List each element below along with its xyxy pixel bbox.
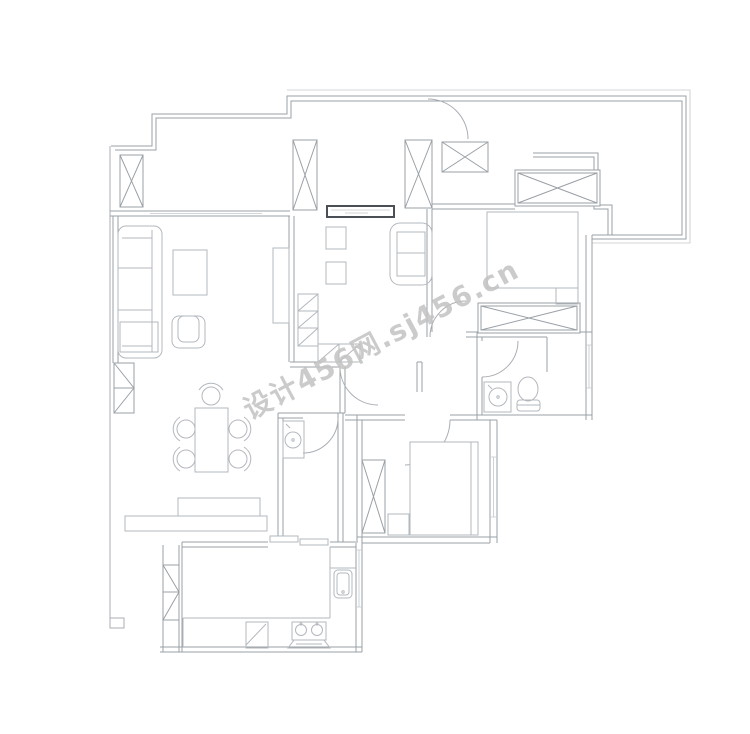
master-closet bbox=[515, 170, 600, 206]
armchair bbox=[172, 316, 205, 348]
column-icon bbox=[362, 460, 385, 533]
sideboard bbox=[178, 498, 260, 516]
column-icon bbox=[293, 140, 317, 210]
entry-door-arc bbox=[428, 99, 468, 139]
column-icon bbox=[114, 363, 134, 413]
kitchen-counter bbox=[183, 547, 356, 647]
master-wardrobe bbox=[478, 303, 580, 333]
toilet-icon bbox=[517, 377, 540, 411]
sideboard-lower bbox=[125, 516, 267, 531]
wash-basin-icon bbox=[484, 382, 511, 412]
dining-chair bbox=[199, 383, 223, 405]
tv-cabinet bbox=[273, 248, 289, 323]
corner-cabinet bbox=[246, 622, 268, 648]
loveseat bbox=[390, 223, 432, 285]
floor-plan-page: 设计456网.sj456.cn bbox=[0, 0, 750, 734]
dining-chair bbox=[229, 447, 251, 471]
dining-chair bbox=[229, 417, 251, 441]
dining-chair bbox=[173, 447, 195, 471]
column-icon bbox=[405, 140, 432, 208]
dining-table bbox=[195, 408, 228, 472]
bathroom-fixtures bbox=[484, 377, 540, 412]
kitchen-fixtures bbox=[183, 547, 356, 648]
bedroom2-furniture bbox=[388, 442, 478, 535]
nightstand bbox=[556, 288, 578, 304]
tea-chair bbox=[326, 227, 346, 249]
dining-chair bbox=[173, 417, 195, 441]
single-bed bbox=[410, 442, 478, 535]
tea-chair bbox=[326, 262, 346, 284]
kitchen-sink-icon bbox=[334, 570, 352, 598]
washing-machine-icon bbox=[283, 421, 304, 458]
living-room-furniture bbox=[118, 226, 289, 358]
cooktop-icon bbox=[288, 622, 330, 648]
column-icon bbox=[163, 565, 179, 620]
sofa bbox=[118, 226, 162, 358]
laundry-fixtures bbox=[283, 421, 304, 458]
coffee-table bbox=[173, 250, 207, 295]
floor-plan-canvas: 设计456网.sj456.cn bbox=[0, 0, 750, 734]
bay-window-counter bbox=[327, 206, 394, 217]
laundry-door-arc bbox=[303, 418, 338, 453]
bedside-cabinet bbox=[388, 514, 409, 535]
entry-wardrobe bbox=[442, 142, 488, 172]
column-icon bbox=[120, 155, 143, 207]
bathroom-door-arc bbox=[482, 341, 518, 377]
